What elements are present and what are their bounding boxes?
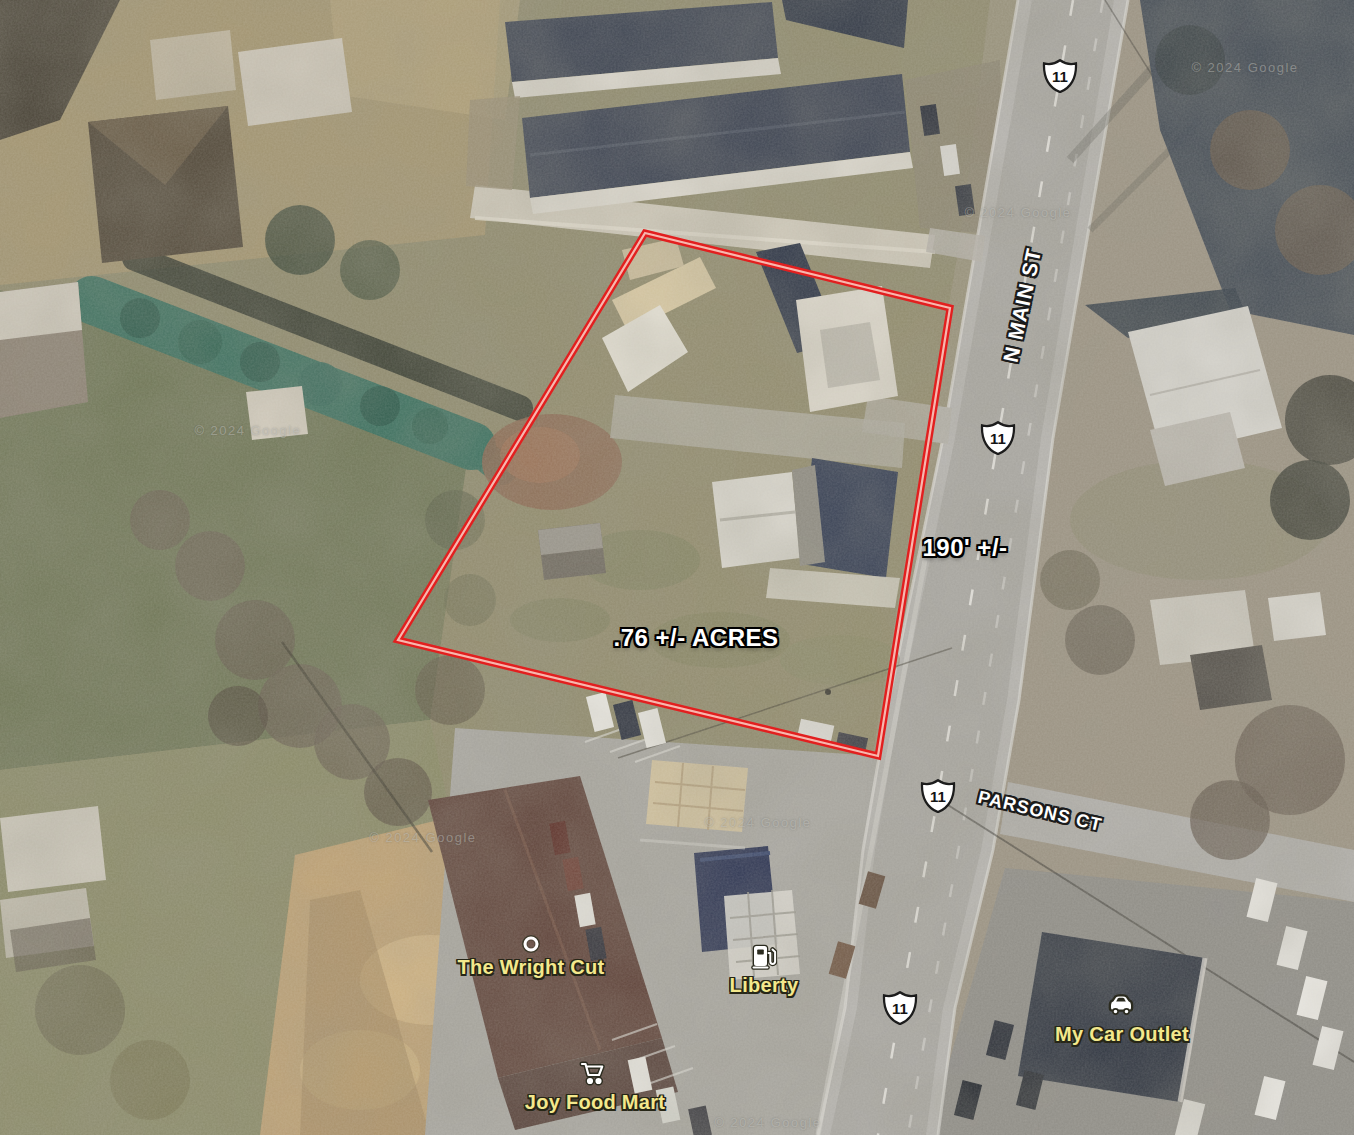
route-11-shield-parsons: 11 xyxy=(920,779,956,813)
shopping-cart-icon[interactable] xyxy=(579,1059,607,1091)
route-11-shield-bottom: 11 xyxy=(882,991,918,1025)
noise-overlay xyxy=(0,0,1354,1135)
poi-label-joy-food-mart[interactable]: Joy Food Mart xyxy=(525,1092,666,1112)
car-icon[interactable] xyxy=(1107,992,1135,1020)
gas-pump-icon[interactable] xyxy=(751,943,777,975)
circle-marker-icon xyxy=(524,937,539,952)
poi-label-wright-cut[interactable]: The Wright Cut xyxy=(457,957,604,977)
google-attribution-watermark: © 2024 Google xyxy=(194,424,301,437)
route-11-shield-top: 11 xyxy=(1042,59,1078,93)
google-attribution-watermark: © 2024 Google xyxy=(714,1116,821,1129)
wright-cut-marker-icon[interactable] xyxy=(524,937,539,952)
acreage-label: .76 +/- ACRES xyxy=(614,626,779,650)
route-number: 11 xyxy=(920,779,956,813)
google-attribution-watermark: © 2024 Google xyxy=(964,206,1071,219)
route-11-shield-mid: 11 xyxy=(980,421,1016,455)
poi-label-my-car-outlet[interactable]: My Car Outlet xyxy=(1055,1024,1189,1044)
route-number: 11 xyxy=(882,991,918,1025)
google-attribution-watermark: © 2024 Google xyxy=(1191,61,1298,74)
google-attribution-watermark: © 2024 Google xyxy=(369,831,476,844)
poi-label-liberty[interactable]: Liberty xyxy=(730,975,799,995)
satellite-map-view[interactable]: N MAIN ST PARSONS CT 190' +/- .76 +/- AC… xyxy=(0,0,1354,1135)
google-attribution-watermark: © 2024 Google xyxy=(704,816,811,829)
satellite-imagery xyxy=(0,0,1354,1135)
route-number: 11 xyxy=(1042,59,1078,93)
frontage-measurement-label: 190' +/- xyxy=(922,536,1007,560)
route-number: 11 xyxy=(980,421,1016,455)
